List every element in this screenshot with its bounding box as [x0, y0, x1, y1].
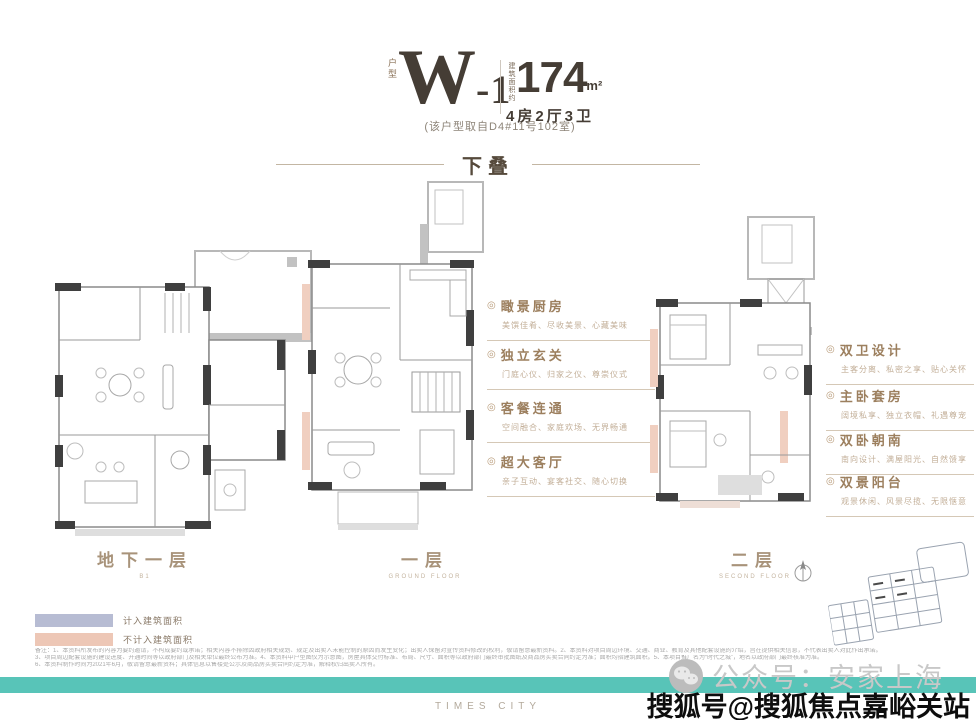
- feature-title: 瞰景厨房: [501, 296, 565, 315]
- section-header: 下叠: [0, 150, 976, 179]
- basement-floor-plan: [45, 245, 320, 540]
- bullet-icon: ◎: [487, 456, 496, 467]
- unit-name-letter: W: [398, 33, 476, 120]
- legend-label: 计入建筑面积: [123, 614, 183, 627]
- bullet-icon: ◎: [487, 349, 496, 360]
- bullet-icon: ◎: [826, 390, 835, 401]
- feature-title: 独立玄关: [501, 345, 565, 364]
- first-floor-plan: [300, 180, 485, 540]
- bullet-icon: ◎: [826, 476, 835, 487]
- feature-desc: 阔境私享、独立衣帽、礼遇尊宠: [841, 410, 974, 421]
- bullet-icon: ◎: [826, 344, 835, 355]
- feature-title: 双卧朝南: [840, 430, 904, 449]
- bullet-icon: ◎: [826, 434, 835, 445]
- section-line-left: [276, 164, 444, 165]
- feature-title: 超大客厅: [501, 452, 565, 471]
- plan-label-en: SECOND FLOOR: [660, 574, 850, 580]
- unit-title-block: 户型 W-1 建筑面积约 174 m² 4房2厅3卫 (该户型取自D4#11号1…: [380, 38, 620, 140]
- area-prefix-label: 建筑面积约: [506, 62, 516, 102]
- title-divider: [500, 60, 501, 114]
- feature-desc: 门庭心仪、归家之仪、尊崇仪式: [502, 369, 655, 380]
- legend-swatch-counted: [35, 614, 113, 627]
- feature-item: ◎ 双卫设计 主客分离、私密之享、贴心关怀: [826, 340, 974, 385]
- feature-desc: 南向设计、满屋阳光、自然馈享: [841, 454, 974, 465]
- bullet-icon: ◎: [487, 300, 496, 311]
- unit-name: W-1: [398, 38, 511, 116]
- disclaimer-line: 备注：1、本资料所发布的内容为要约邀请，不构成要约或承诺；相关内容不排除因政府相…: [35, 648, 961, 655]
- feature-item: ◎ 双卧朝南 南向设计、满屋阳光、自然馈享: [826, 430, 974, 475]
- feature-item: ◎ 超大客厅 亲子互动、宴客社交、随心切换: [487, 452, 655, 497]
- area-value: 174: [516, 56, 586, 100]
- sohu-account-text: 搜狐号@搜狐焦点嘉峪关站: [647, 685, 970, 720]
- plan-label-en: B1: [45, 574, 245, 580]
- area-block: 建筑面积约 174 m² 4房2厅3卫: [506, 56, 602, 126]
- plan-label-basement: 地下一层 B1: [45, 546, 245, 580]
- unit-source-note: (该户型取自D4#11号102室): [380, 118, 620, 134]
- plan-label-en: GROUND FLOOR: [330, 574, 520, 580]
- compass-icon: [792, 556, 814, 586]
- feature-title: 双卫设计: [840, 340, 904, 359]
- area-unit: m²: [586, 78, 602, 93]
- feature-desc: 亲子互动、宴客社交、随心切换: [502, 476, 655, 487]
- bullet-icon: ◎: [487, 402, 496, 413]
- feature-item: ◎ 客餐连通 空间融合、家庭欢场、无界畅通: [487, 398, 655, 443]
- feature-item: ◎ 主卧套房 阔境私享、独立衣帽、礼遇尊宠: [826, 386, 974, 431]
- feature-desc: 美馔佳肴、尽收美景、心藏美味: [502, 320, 655, 331]
- plan-label-zh: 一层: [330, 546, 520, 571]
- legend-row: 不计入建筑面积: [35, 633, 193, 646]
- section-line-right: [532, 164, 700, 165]
- legend-label: 不计入建筑面积: [123, 633, 193, 646]
- feature-title: 双景阳台: [840, 472, 904, 491]
- feature-desc: 空间融合、家庭欢场、无界畅通: [502, 422, 655, 433]
- feature-item: ◎ 独立玄关 门庭心仪、归家之仪、尊崇仪式: [487, 345, 655, 390]
- feature-title: 客餐连通: [501, 398, 565, 417]
- feature-desc: 主客分离、私密之享、贴心关怀: [841, 364, 974, 375]
- feature-item: ◎ 双景阳台 观景休闲、风景尽揽、无限惬意: [826, 472, 974, 517]
- second-floor-plan: [650, 215, 825, 540]
- feature-desc: 观景休闲、风景尽揽、无限惬意: [841, 496, 974, 507]
- area-legend: 计入建筑面积 不计入建筑面积: [35, 614, 193, 652]
- legend-swatch-not-counted: [35, 633, 113, 646]
- plan-label-zh: 地下一层: [45, 546, 245, 571]
- plan-label-first: 一层 GROUND FLOOR: [330, 546, 520, 580]
- feature-title: 主卧套房: [840, 386, 904, 405]
- section-title: 下叠: [462, 150, 514, 179]
- floorplan-poster-page: 户型 W-1 建筑面积约 174 m² 4房2厅3卫 (该户型取自D4#11号1…: [0, 0, 976, 720]
- feature-item: ◎ 瞰景厨房 美馔佳肴、尽收美景、心藏美味: [487, 296, 655, 341]
- legend-row: 计入建筑面积: [35, 614, 193, 627]
